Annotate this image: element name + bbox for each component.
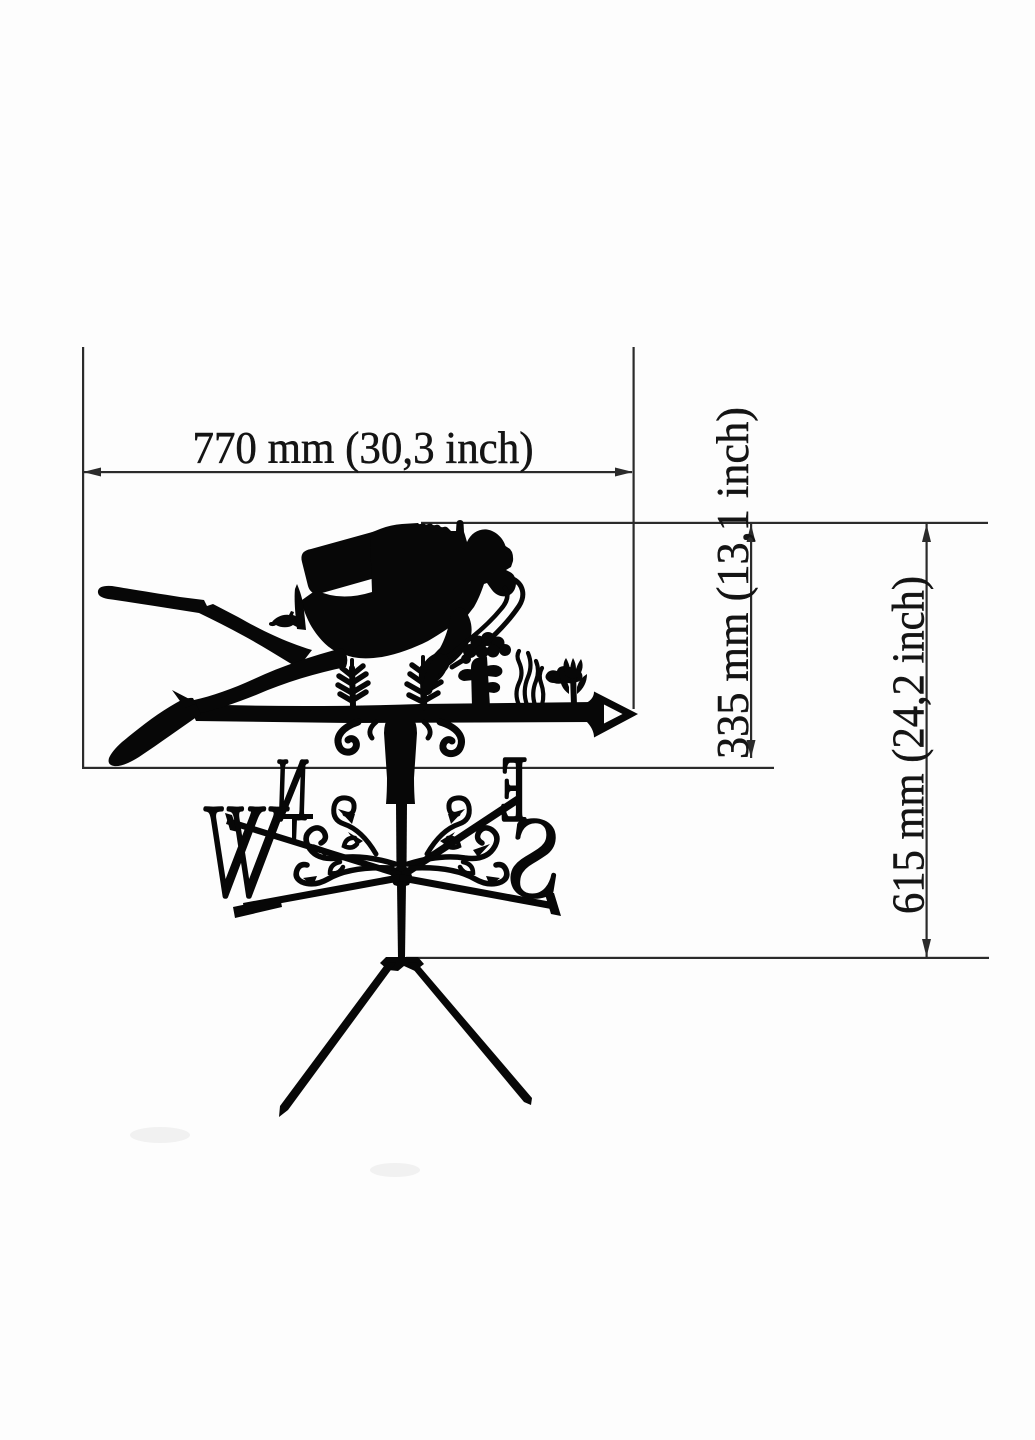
svg-text:335 mm (13,1 inch): 335 mm (13,1 inch) (708, 407, 758, 759)
svg-text:770 mm (30,3 inch): 770 mm (30,3 inch) (193, 423, 534, 473)
svg-text:615 mm (24,2 inch): 615 mm (24,2 inch) (884, 576, 934, 914)
